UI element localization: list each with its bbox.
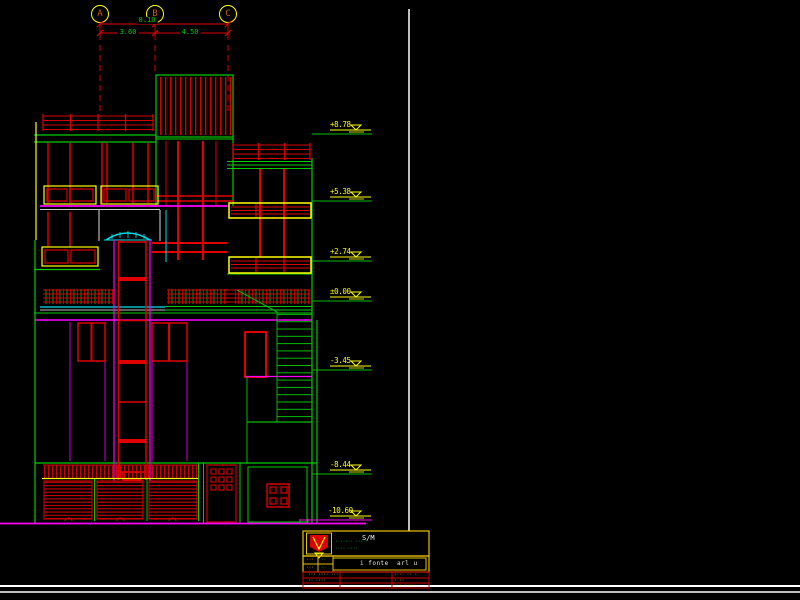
title-block-company-line2: ···· ···· [335, 547, 358, 552]
left-second-floor [34, 210, 160, 270]
dimension-total: 8.10 [137, 17, 158, 24]
title-block-doc-label: i fonte arl u [360, 561, 418, 567]
door-opening [245, 332, 266, 377]
cad-elevation-drawing [0, 0, 800, 600]
title-block-cell: ··· [306, 558, 314, 563]
garage-door [44, 481, 92, 519]
entry-door-lights [211, 469, 232, 490]
garage-door [149, 481, 197, 519]
left-roof-railing [43, 114, 153, 131]
title-block-row3-right: ··· ···· [394, 584, 414, 589]
elevation-label: -3.45 [330, 357, 351, 365]
mid-slab [40, 206, 227, 210]
side-bay [248, 467, 307, 522]
elevation-label: -10.60 [328, 507, 353, 515]
dimension-bc: 4.50 [180, 29, 201, 36]
title-block-cell: ··· [306, 566, 314, 571]
grid-bubble-label-a: A [97, 10, 102, 19]
title-block-cell: ·· [321, 566, 326, 571]
elevation-label: +8.78 [330, 121, 351, 129]
left-roof-slab [34, 122, 156, 240]
title-block-company-line1: ······· ····· [335, 540, 368, 545]
garage-door [97, 481, 143, 519]
elevation-label: +5.38 [330, 188, 351, 196]
ornament-grille [267, 484, 289, 507]
terrace-railing [34, 289, 312, 320]
elevation-label: +2.74 [330, 248, 351, 256]
title-block-row3-left: ···· [315, 584, 325, 589]
balcony-box-upper [229, 203, 311, 218]
elevation-label: -8.44 [330, 461, 351, 469]
title-block-cell: ·· [321, 558, 326, 563]
grid-bubble-label-c: C [225, 10, 230, 19]
elevation-label: ±0.00 [330, 288, 351, 296]
dimension-ab: 3.60 [118, 29, 139, 36]
tower-bulkhead [152, 75, 233, 262]
cad-sheet: A B C 8.10 3.60 4.50 +8.78 +5.38 +2.74 ±… [0, 0, 800, 600]
balcony-box-lower [229, 257, 311, 273]
left-upper-windows [44, 143, 158, 204]
elevator-shaft [114, 240, 150, 481]
garage-level [42, 463, 307, 523]
